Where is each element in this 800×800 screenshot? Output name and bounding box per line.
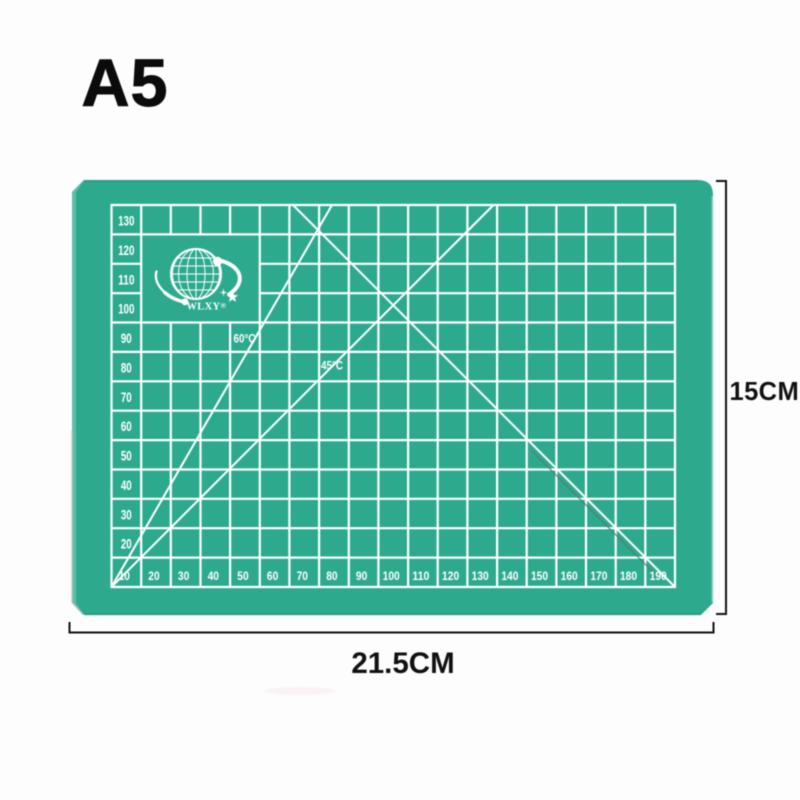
svg-text:100: 100 — [118, 301, 135, 317]
svg-text:40: 40 — [208, 569, 220, 583]
svg-text:45°C: 45°C — [321, 359, 343, 373]
svg-text:21.5CM: 21.5CM — [351, 647, 454, 680]
svg-text:80: 80 — [326, 569, 338, 583]
svg-text:80: 80 — [121, 359, 132, 375]
svg-text:90: 90 — [356, 569, 368, 583]
svg-text:30: 30 — [121, 506, 132, 522]
svg-text:100: 100 — [383, 569, 400, 583]
svg-text:60: 60 — [121, 418, 132, 434]
svg-text:120: 120 — [442, 569, 459, 583]
svg-text:180: 180 — [620, 569, 637, 583]
svg-text:140: 140 — [501, 569, 518, 583]
svg-text:170: 170 — [590, 569, 607, 583]
svg-text:90: 90 — [121, 330, 132, 346]
svg-text:190: 190 — [650, 569, 667, 583]
svg-text:40: 40 — [121, 477, 132, 493]
svg-text:60°C: 60°C — [234, 332, 256, 346]
svg-text:A5: A5 — [82, 47, 169, 121]
svg-text:120: 120 — [118, 242, 135, 258]
svg-text:10: 10 — [119, 569, 131, 583]
svg-text:130: 130 — [472, 569, 489, 583]
svg-text:20: 20 — [121, 536, 132, 552]
svg-text:50: 50 — [121, 448, 132, 464]
svg-text:70: 70 — [297, 569, 309, 583]
svg-text:30: 30 — [178, 569, 190, 583]
svg-text:150: 150 — [531, 569, 548, 583]
svg-text:130: 130 — [118, 213, 135, 229]
svg-text:110: 110 — [412, 569, 429, 583]
svg-text:20: 20 — [148, 569, 160, 583]
svg-text:70: 70 — [121, 389, 132, 405]
svg-text:160: 160 — [561, 569, 578, 583]
svg-text:110: 110 — [118, 271, 135, 287]
svg-text:60: 60 — [267, 569, 279, 583]
svg-text:15CM: 15CM — [730, 378, 800, 406]
svg-text:50: 50 — [237, 569, 249, 583]
